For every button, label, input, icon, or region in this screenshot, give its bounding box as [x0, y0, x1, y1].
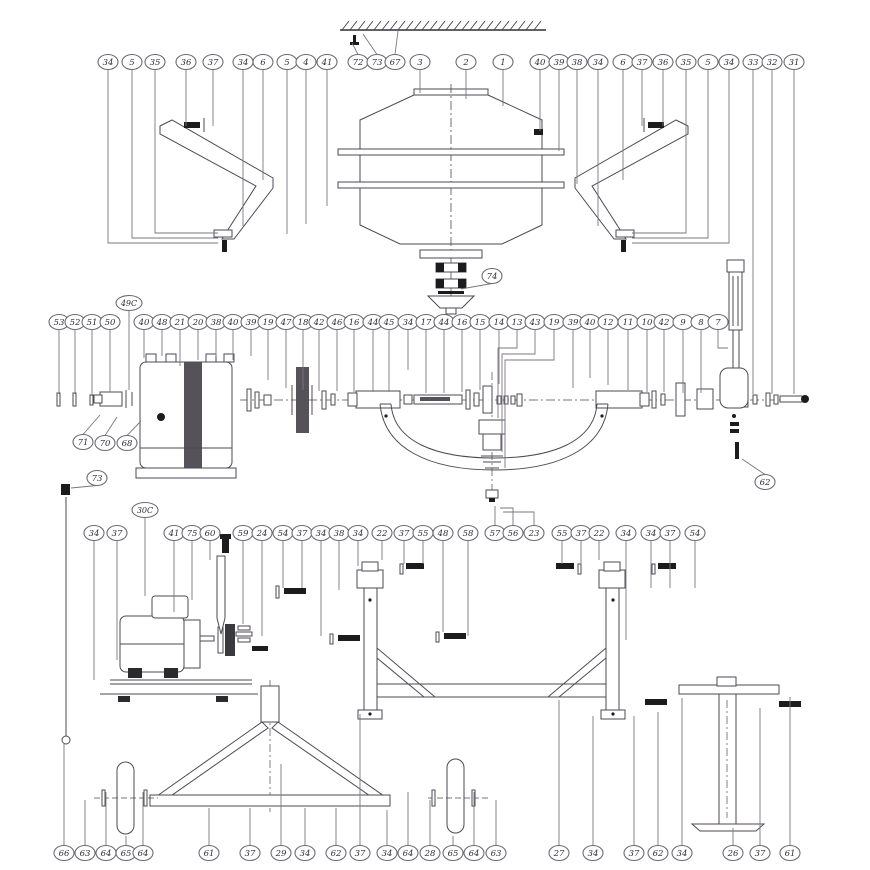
balloon-number: 34	[300, 849, 311, 859]
balloon-37: 37	[632, 55, 652, 70]
balloon-number: 14	[494, 318, 505, 328]
balloon-34: 34	[641, 526, 661, 541]
balloon-number: 28	[424, 849, 436, 859]
balloon-number: 13	[512, 318, 523, 328]
balloon-34: 34	[672, 846, 692, 861]
balloon-number: 34	[403, 318, 414, 328]
balloon-number: 45	[383, 318, 395, 328]
balloon-48: 48	[433, 526, 453, 541]
balloon-number: 38	[211, 318, 222, 328]
leader-line	[718, 330, 728, 349]
gearbox-housing	[57, 354, 236, 478]
balloon-34: 34	[583, 846, 603, 861]
balloon-number: 66	[59, 849, 70, 859]
balloon-number: 4	[302, 58, 308, 68]
balloon-63: 63	[486, 846, 506, 861]
balloon-30C: 30C	[132, 503, 158, 518]
balloon-33: 33	[743, 55, 763, 70]
balloon-59: 59	[233, 526, 253, 541]
balloon-6: 6	[253, 55, 273, 70]
balloon-number: 39	[246, 318, 257, 328]
balloon-number: 37	[112, 529, 123, 539]
balloon-13: 13	[507, 315, 527, 330]
balloon-number: 64	[469, 849, 480, 859]
balloon-36: 36	[653, 55, 673, 70]
balloon-number: 20	[192, 318, 204, 328]
balloon-29: 29	[271, 846, 291, 861]
balloon-42: 42	[654, 315, 674, 330]
balloon-number: 34	[724, 58, 735, 68]
balloon-40: 40	[580, 315, 600, 330]
balloon-37: 37	[203, 55, 223, 70]
balloon-number: 39	[568, 318, 579, 328]
leader-line	[83, 415, 100, 435]
balloon-37: 37	[240, 846, 260, 861]
balloon-number: 73	[372, 58, 383, 68]
leader-line	[498, 330, 517, 419]
balloon-number: 6	[260, 58, 266, 68]
balloon-number: 34	[316, 529, 327, 539]
balloon-64: 64	[96, 846, 116, 861]
balloon-6: 6	[613, 55, 633, 70]
balloon-number: 51	[87, 318, 98, 328]
balloon-number: 37	[755, 849, 766, 859]
balloon-number: 37	[665, 529, 676, 539]
balloon-22: 22	[372, 526, 392, 541]
balloon-64: 64	[133, 846, 153, 861]
balloon-5: 5	[122, 55, 142, 70]
balloon-62: 62	[755, 475, 775, 490]
balloon-41: 41	[164, 526, 184, 541]
balloon-number: 55	[557, 529, 568, 539]
balloon-23: 23	[524, 526, 544, 541]
balloon-26: 26	[723, 846, 743, 861]
drum-band-upper	[338, 149, 564, 155]
stand-bracket-left	[160, 118, 273, 252]
balloon-34: 34	[295, 846, 315, 861]
balloon-65: 65	[443, 846, 463, 861]
balloon-34: 34	[84, 526, 104, 541]
leader-line	[742, 459, 765, 475]
balloon-41: 41	[317, 55, 337, 70]
drive-pulley	[296, 367, 309, 433]
balloon-number: 70	[100, 439, 111, 449]
balloon-22: 22	[589, 526, 609, 541]
balloon-19: 19	[258, 315, 278, 330]
balloon-57: 57	[485, 526, 505, 541]
balloon-number: 8	[698, 318, 704, 328]
motor-pulley	[225, 624, 235, 656]
balloon-20: 20	[188, 315, 208, 330]
balloon-number: 63	[491, 849, 502, 859]
balloon-34: 34	[233, 55, 253, 70]
tie-rod	[61, 484, 70, 744]
balloon-number: 40	[534, 58, 546, 68]
balloon-37: 37	[750, 846, 770, 861]
balloon-17: 17	[416, 315, 436, 330]
balloon-number: 37	[629, 849, 640, 859]
balloon-number: 35	[681, 58, 692, 68]
balloon-64: 64	[464, 846, 484, 861]
balloon-number: 10	[642, 318, 653, 328]
machine-artwork	[57, 21, 809, 834]
balloon-42: 42	[309, 315, 329, 330]
balloon-number: 18	[298, 318, 309, 328]
bearing-block-right	[596, 391, 642, 408]
balloon-number: 57	[490, 529, 501, 539]
balloon-34: 34	[616, 526, 636, 541]
balloon-35: 35	[676, 55, 696, 70]
balloon-5: 5	[277, 55, 297, 70]
leader-line	[503, 512, 534, 526]
balloon-number: 16	[349, 318, 360, 328]
balloon-61: 61	[199, 846, 219, 861]
motor-shaft	[200, 636, 214, 641]
balloon-number: 43	[529, 318, 541, 328]
balloon-44: 44	[434, 315, 454, 330]
balloon-37: 37	[292, 526, 312, 541]
balloon-number: 75	[187, 529, 198, 539]
balloon-35: 35	[145, 55, 165, 70]
balloon-number: 12	[603, 318, 614, 328]
balloon-number: 42	[313, 318, 325, 328]
balloon-number: 52	[70, 318, 81, 328]
balloon-number: 44	[438, 318, 450, 328]
balloon-72: 72	[348, 55, 368, 70]
balloon-27: 27	[549, 846, 569, 861]
balloon-36: 36	[176, 55, 196, 70]
balloon-number: 6	[620, 58, 626, 68]
balloon-number: 17	[421, 318, 432, 328]
balloon-38: 38	[567, 55, 587, 70]
balloon-66: 66	[54, 846, 74, 861]
balloon-63: 63	[75, 846, 95, 861]
balloon-14: 14	[489, 315, 509, 330]
balloon-number: 32	[767, 58, 778, 68]
balloon-number: 67	[390, 58, 401, 68]
balloon-73: 73	[367, 55, 387, 70]
balloon-2: 2	[456, 55, 476, 70]
balloon-12: 12	[598, 315, 618, 330]
balloon-55: 55	[552, 526, 572, 541]
balloon-32: 32	[762, 55, 782, 70]
balloon-3: 3	[410, 55, 430, 70]
leader-line	[71, 486, 97, 489]
balloon-40: 40	[530, 55, 550, 70]
balloon-number: 54	[278, 529, 289, 539]
balloon-68: 68	[117, 436, 137, 451]
balloon-number: 35	[150, 58, 161, 68]
wall-hatch-section	[340, 21, 546, 45]
bearing-block-left	[356, 391, 400, 408]
balloon-number: 65	[448, 849, 459, 859]
balloon-70: 70	[95, 436, 115, 451]
balloon-number: 34	[382, 849, 393, 859]
balloon-16: 16	[344, 315, 364, 330]
balloon-number: 59	[238, 529, 249, 539]
balloon-number: 34	[646, 529, 657, 539]
balloon-number: 73	[92, 474, 103, 484]
balloon-34: 34	[348, 526, 368, 541]
balloon-24: 24	[252, 526, 272, 541]
drum-band-lower	[338, 182, 564, 188]
balloon-67: 67	[385, 55, 405, 70]
balloon-16: 16	[452, 315, 472, 330]
balloon-1: 1	[493, 55, 513, 70]
balloon-71: 71	[73, 435, 93, 450]
balloon-number: 36	[181, 58, 192, 68]
balloon-73: 73	[87, 471, 107, 486]
balloon-34: 34	[377, 846, 397, 861]
balloon-number: 37	[297, 529, 308, 539]
balloon-58: 58	[458, 526, 478, 541]
balloon-7: 7	[708, 315, 728, 330]
balloon-number: 48	[437, 529, 449, 539]
balloon-number: 39	[554, 58, 565, 68]
balloon-number: 71	[78, 438, 89, 448]
balloon-number: 41	[321, 58, 333, 68]
parts-diagram: 3453536373465441727367321403938346373635…	[0, 0, 870, 870]
balloon-40: 40	[223, 315, 243, 330]
balloon-45: 45	[379, 315, 399, 330]
balloon-4: 4	[296, 55, 316, 70]
balloon-number: 64	[403, 849, 414, 859]
electric-motor	[100, 596, 258, 702]
balloon-number: 31	[789, 58, 800, 68]
balloon-34: 34	[719, 55, 739, 70]
balloon-number: 50	[105, 318, 116, 328]
balloon-54: 54	[685, 526, 705, 541]
balloon-number: 72	[353, 58, 364, 68]
balloon-number: 41	[168, 529, 180, 539]
balloon-number: 34	[238, 58, 249, 68]
balloon-number: 26	[727, 849, 739, 859]
balloon-60: 60	[200, 526, 220, 541]
balloon-number: 58	[463, 529, 474, 539]
balloon-number: 74	[487, 272, 498, 282]
balloon-number: 16	[457, 318, 468, 328]
balloon-34: 34	[398, 315, 418, 330]
balloon-64: 64	[398, 846, 418, 861]
balloon-number: 62	[331, 849, 342, 859]
balloon-number: 48	[156, 318, 168, 328]
balloon-number: 37	[245, 849, 256, 859]
balloon-number: 63	[80, 849, 91, 859]
leader-line	[105, 417, 117, 436]
balloon-number: 5	[284, 58, 289, 68]
balloon-number: 33	[748, 58, 759, 68]
balloon-number: 38	[334, 529, 345, 539]
balloon-34: 34	[588, 55, 608, 70]
balloon-number: 34	[593, 58, 604, 68]
balloon-number: 3	[417, 58, 422, 68]
balloon-number: 2	[462, 58, 468, 68]
wheel-left	[94, 762, 158, 834]
balloon-number: 42	[658, 318, 670, 328]
pedestal-stand	[679, 677, 779, 831]
balloon-number: 15	[475, 318, 486, 328]
balloon-number: 34	[89, 529, 100, 539]
balloon-number: 49C	[120, 299, 137, 308]
balloon-15: 15	[470, 315, 490, 330]
balloon-number: 21	[174, 318, 186, 328]
balloon-number: 61	[785, 849, 796, 859]
balloon-number: 24	[256, 529, 268, 539]
balloon-31: 31	[784, 55, 804, 70]
leader-line	[363, 34, 377, 55]
balloon-9: 9	[673, 315, 693, 330]
balloon-number: 61	[204, 849, 215, 859]
h-frame	[357, 562, 625, 719]
balloon-number: 37	[355, 849, 366, 859]
balloon-number: 68	[122, 439, 133, 449]
drain-plug	[157, 413, 165, 421]
balloon-40: 40	[134, 315, 154, 330]
balloon-number: 53	[54, 318, 65, 328]
balloon-number: 27	[553, 849, 565, 859]
balloon-number: 11	[623, 318, 634, 328]
balloon-number: 40	[227, 318, 239, 328]
balloon-number: 46	[331, 318, 343, 328]
balloon-number: 47	[280, 318, 292, 328]
balloon-number: 34	[588, 849, 599, 859]
balloon-number: 56	[508, 529, 519, 539]
balloon-49C: 49C	[116, 296, 142, 311]
balloon-number: 40	[138, 318, 150, 328]
balloon-number: 62	[653, 849, 664, 859]
balloon-21: 21	[170, 315, 190, 330]
right-column	[720, 260, 748, 459]
leader-line	[500, 508, 513, 526]
balloon-number: 34	[353, 529, 364, 539]
balloon-34: 34	[311, 526, 331, 541]
tripod-stand	[150, 680, 390, 812]
balloon-number: 5	[129, 58, 134, 68]
balloon-number: 55	[418, 529, 429, 539]
balloon-51: 51	[82, 315, 102, 330]
balloon-number: 64	[101, 849, 112, 859]
balloon-37: 37	[107, 526, 127, 541]
balloon-61: 61	[780, 846, 800, 861]
balloon-55: 55	[413, 526, 433, 541]
balloon-62: 62	[326, 846, 346, 861]
balloon-37: 37	[624, 846, 644, 861]
balloon-19: 19	[544, 315, 564, 330]
balloon-number: 5	[705, 58, 710, 68]
balloon-number: 37	[637, 58, 648, 68]
balloon-number: 37	[576, 529, 587, 539]
balloon-number: 62	[760, 478, 771, 488]
balloon-37: 37	[660, 526, 680, 541]
stand-bracket-right	[575, 118, 688, 252]
balloon-number: 22	[376, 529, 388, 539]
balloon-number: 23	[528, 529, 540, 539]
balloon-48: 48	[152, 315, 172, 330]
pin	[735, 442, 739, 459]
balloon-number: 64	[138, 849, 149, 859]
balloon-37: 37	[350, 846, 370, 861]
balloon-50: 50	[100, 315, 120, 330]
mixer-blade	[217, 534, 268, 651]
balloon-number: 60	[205, 529, 216, 539]
balloon-number: 19	[263, 318, 274, 328]
balloon-54: 54	[273, 526, 293, 541]
balloon-5: 5	[698, 55, 718, 70]
leader-line	[127, 421, 141, 436]
balloon-number: 37	[399, 529, 410, 539]
balloon-37: 37	[394, 526, 414, 541]
balloon-43: 43	[525, 315, 545, 330]
balloon-number: 9	[680, 318, 686, 328]
balloon-number: 40	[584, 318, 596, 328]
balloon-number: 38	[572, 58, 583, 68]
balloon-37: 37	[571, 526, 591, 541]
balloon-number: 34	[677, 849, 688, 859]
gearbox-bolt	[100, 392, 122, 406]
balloon-number: 29	[275, 849, 287, 859]
balloon-74: 74	[482, 269, 502, 284]
balloon-number: 54	[690, 529, 701, 539]
balloon-number: 19	[549, 318, 560, 328]
balloon-11: 11	[618, 315, 638, 330]
wheel-right	[428, 759, 488, 833]
band-clamp	[534, 129, 543, 135]
balloon-number: 22	[593, 529, 605, 539]
drawing-page: 3453536373465441727367321403938346373635…	[0, 0, 870, 870]
balloon-34: 34	[98, 55, 118, 70]
balloon-number: 44	[367, 318, 379, 328]
balloon-62: 62	[648, 846, 668, 861]
balloon-number: 37	[208, 58, 219, 68]
balloon-number: 7	[715, 318, 721, 328]
balloon-number: 30C	[137, 506, 153, 515]
balloon-75: 75	[182, 526, 202, 541]
balloon-number: 1	[500, 58, 505, 68]
balloon-number: 34	[103, 58, 114, 68]
balloon-56: 56	[503, 526, 523, 541]
balloon-39: 39	[549, 55, 569, 70]
balloon-number: 34	[621, 529, 632, 539]
balloon-28: 28	[420, 846, 440, 861]
leader-line	[395, 31, 398, 55]
balloon-38: 38	[329, 526, 349, 541]
balloon-number: 65	[121, 849, 132, 859]
balloon-number: 36	[658, 58, 669, 68]
mixing-drum	[338, 84, 564, 314]
